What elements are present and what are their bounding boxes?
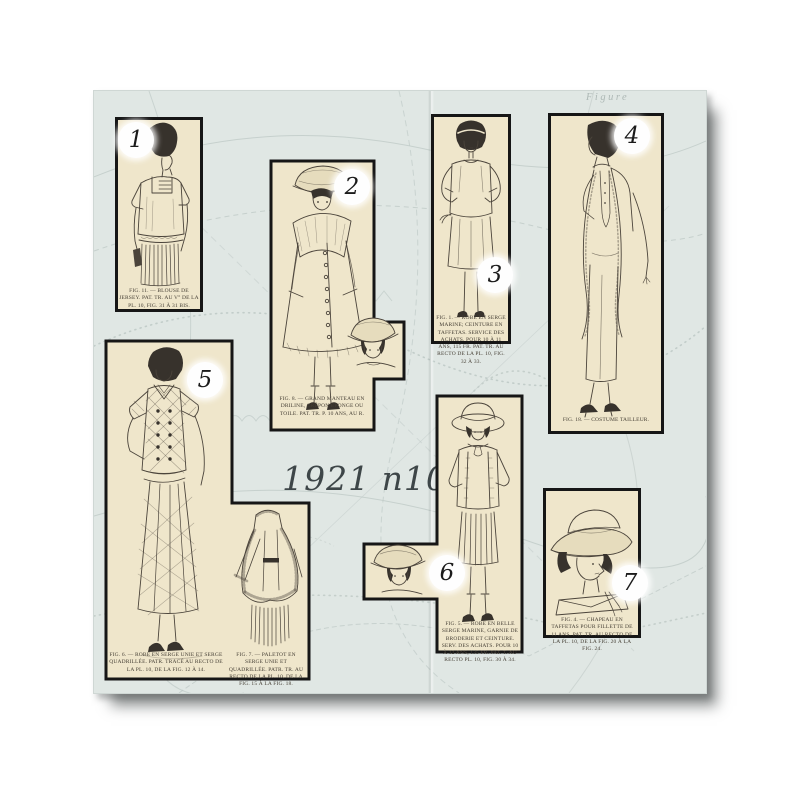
- figure-number-badge: 6: [429, 555, 465, 591]
- figure-caption: FIG. 5. — ROBE EN BELLE SERGE MARINE, GA…: [440, 621, 520, 665]
- fashion-panel-4: 4 FIG. 18. — COSTUME TAILLEUR.: [548, 113, 664, 434]
- figure-number-badge: 3: [477, 257, 513, 293]
- fashion-panel-1: 1 FIG. 11. — BLOUSE DE JERSEY. PAT. TR. …: [115, 117, 203, 312]
- figure-number-badge: 2: [334, 169, 370, 205]
- figure-caption: FIG. 1. — ROBE EN SERGE MARINE; CEINTURE…: [436, 315, 506, 366]
- pattern-sheet: Figure 1921 n10: [93, 90, 707, 694]
- fashion-panel-7: 7 FIG. 4. — CHAPEAU EN TAFFETAS POUR FIL…: [543, 488, 641, 638]
- figure-number-badge: 5: [187, 362, 223, 398]
- figure-caption-right: FIG. 7. — PALETOT EN SERGE UNIE ET QUADR…: [227, 652, 305, 688]
- sheet-watermark-text: Figure: [586, 92, 629, 103]
- figure-caption: FIG. 18. — COSTUME TAILLEUR.: [556, 417, 656, 424]
- girl-dress-sketch: [431, 114, 511, 344]
- figure-number-badge: 7: [612, 565, 648, 601]
- fashion-panel-5: 5 FIG. 6. — ROBE EN SERGE UNIE ET SERGE …: [104, 339, 311, 681]
- girl-pleated-dress-sketch: [362, 394, 524, 654]
- figure-number-badge: 4: [614, 118, 650, 154]
- fashion-panel-3: 3 FIG. 1. — ROBE EN SERGE MARINE; CEINTU…: [431, 114, 511, 344]
- figure-number-badge: 1: [118, 122, 154, 158]
- hat-portrait-sketch: [543, 488, 641, 638]
- figure-caption-left: FIG. 6. — ROBE EN SERGE UNIE ET SERGE QU…: [109, 652, 223, 674]
- figure-caption: FIG. 4. — CHAPEAU EN TAFFETAS POUR FILLE…: [548, 617, 636, 653]
- tailored-suit-sketch: [548, 113, 664, 434]
- figure-caption: FIG. 11. — BLOUSE DE JERSEY. PAT. TR. AU…: [119, 288, 199, 310]
- fashion-panel-6: 6 FIG. 5. — ROBE EN BELLE SERGE MARINE, …: [362, 394, 524, 654]
